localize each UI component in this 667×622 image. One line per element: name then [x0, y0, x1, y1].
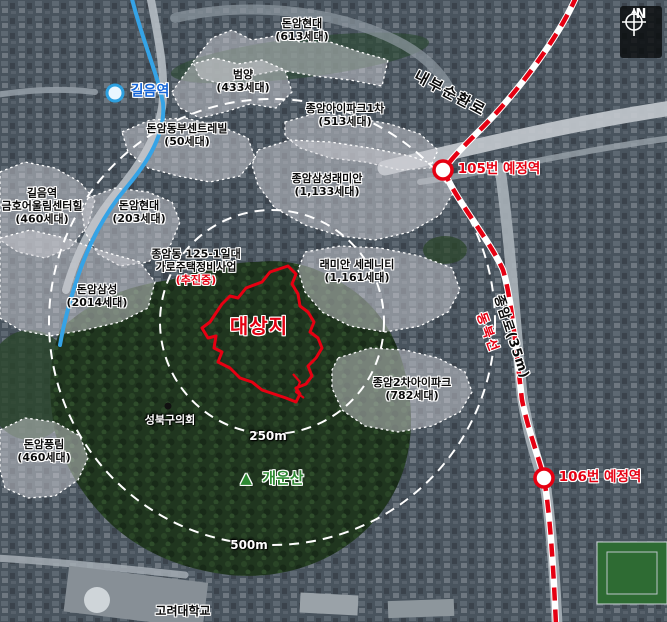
complex-label-jongam-ipark1: 종암아이파크1차 (513세대)	[306, 103, 385, 129]
council-dot-marker	[165, 403, 172, 410]
station-105-marker	[434, 161, 452, 179]
complex-label-bangyang: 범양 (433세대)	[216, 69, 269, 95]
station-105-label: 105번 예정역	[458, 162, 541, 178]
station-106-label: 106번 예정역	[559, 470, 642, 486]
compass: N	[620, 6, 662, 58]
council-label: 성북구의회	[145, 415, 196, 428]
complex-label-jongam-samsung-raemian: 종암삼성래미안 (1,133세대)	[292, 173, 363, 199]
mountain-peak-icon: ▲	[240, 469, 252, 487]
complex-label-raemian-serenity: 래미안 세레니티 (1,161세대)	[320, 259, 395, 285]
station-106-marker	[535, 469, 553, 487]
satellite-base-map	[0, 0, 667, 622]
complex-label-donam-poongrim: 돈암풍림 (460세대)	[17, 439, 70, 465]
compass-icon	[620, 6, 648, 38]
complex-label-donam-samsung: 돈암삼성 (2014세대)	[67, 284, 128, 310]
site-location-map: 돈암현대 (613세대) 범양 (433세대) 종암아이파크1차 (513세대)…	[0, 0, 667, 622]
gireum-station-marker	[107, 85, 123, 101]
project-label-jongam125: 종암동 125-1일대 가로주택정비사업 (추진중)	[151, 249, 241, 288]
complex-label-jongam2-ipark: 종암2차아이파크 (782세대)	[373, 377, 452, 403]
radius-500-label: 500m	[230, 538, 268, 552]
complex-label-donam-hyundai-top: 돈암현대 (613세대)	[275, 18, 328, 44]
complex-label-donam-dongbu: 돈암동부센트레빌 (50세대)	[147, 123, 228, 149]
complex-label-gireum-kumho: 길음역 금호어울림센터힐 (460세대)	[2, 188, 83, 227]
gaeunsan-label: ▲ 개운산	[240, 470, 303, 488]
gireum-station-label: 길음역	[131, 84, 170, 101]
university-label: 고려대학교	[155, 604, 210, 618]
radius-250-label: 250m	[249, 429, 287, 443]
complex-label-donam-hyundai-left: 돈암현대 (203세대)	[112, 200, 165, 226]
site-label: 대상지	[230, 315, 288, 339]
